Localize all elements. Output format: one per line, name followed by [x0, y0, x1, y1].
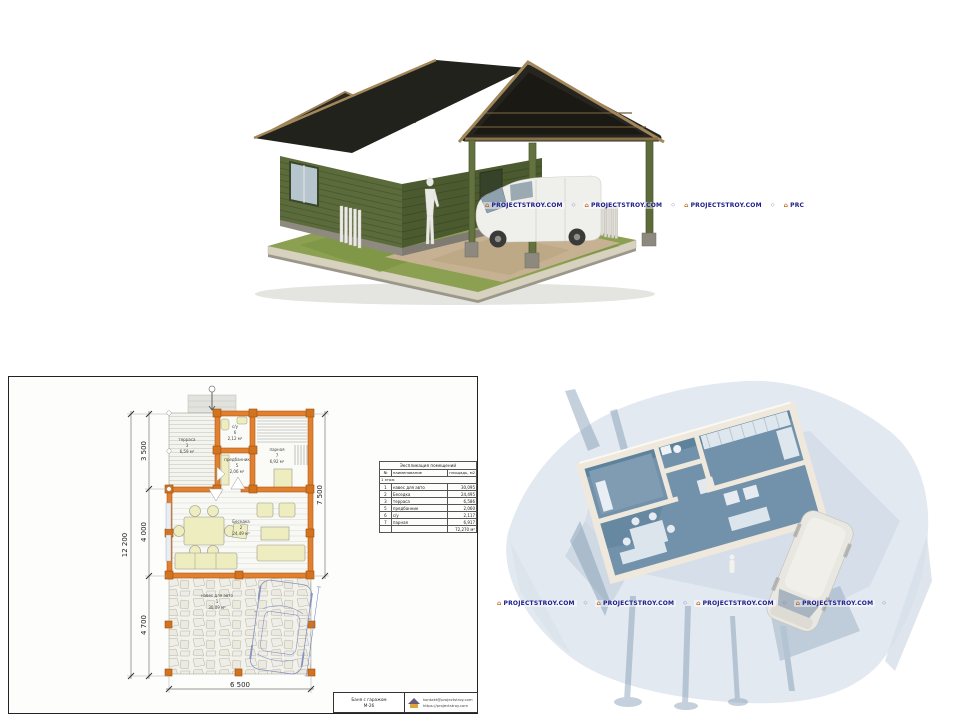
carport-paving — [169, 576, 311, 674]
row-num: 3 — [380, 498, 392, 505]
dim-segment-top: 3 500 — [140, 441, 148, 461]
project-presentation-page: { "watermarks": { "brand": "PROJECTSTROY… — [0, 0, 960, 722]
explication-table: Экспликация помещений № наименование пло… — [379, 461, 477, 533]
row-num: 2 — [380, 491, 392, 498]
window-symbol — [166, 503, 171, 529]
house-icon: ⌂ — [684, 203, 689, 209]
exterior-render-panel — [180, 10, 760, 310]
svg-text:30,09 м²: 30,09 м² — [208, 605, 226, 610]
col-header-num: № — [380, 470, 392, 477]
row-name: с/у — [391, 512, 447, 519]
company-logo-icon — [408, 698, 420, 708]
house-icon: ⌂ — [585, 203, 590, 209]
contact-website: https://projectstroy.com — [423, 703, 473, 708]
table-row: 6 с/у 2,117 — [380, 512, 477, 519]
row-num: 7 — [380, 519, 392, 526]
watermark-text: PROJECTSTROY.COM — [492, 202, 563, 209]
svg-text:1: 1 — [216, 599, 219, 604]
left-fence — [340, 206, 361, 248]
row-area: 2,060 — [448, 505, 477, 512]
svg-text:3: 3 — [186, 443, 189, 448]
porch-steps — [188, 386, 236, 413]
watermark: ⌂PROJECTSTROY.COM — [595, 600, 677, 607]
total-area: 72,270 м² — [448, 526, 477, 533]
dim-right-height: 7 500 — [316, 485, 324, 505]
table-row: 1 навес для авто 30,095 — [380, 484, 477, 491]
title-block-project: Баня с гаражом М-26 — [334, 693, 405, 712]
svg-text:предбанник: предбанник — [224, 457, 250, 462]
house-icon: ⌂ — [597, 601, 602, 607]
project-code: М-26 — [364, 703, 374, 708]
table-row: 2 Беседка 24,495 — [380, 491, 477, 498]
row-name: навес для авто — [391, 484, 447, 491]
watermark-text: PROJECTSTROY.COM — [802, 600, 873, 607]
svg-text:6,92 м²: 6,92 м² — [270, 459, 285, 464]
dim-segment-middle: 4 000 — [140, 522, 148, 542]
watermark-text: PROJECTSTROY.COM — [504, 600, 575, 607]
isometric-cutaway-render — [480, 371, 960, 711]
watermark-text: PRC — [790, 202, 804, 209]
watermark: ⌂PROJECTSTROY.COM — [794, 600, 876, 607]
diamond-separator-icon: ◇ — [671, 203, 675, 208]
isometric-cutaway-panel — [480, 371, 960, 711]
svg-text:с/у: с/у — [232, 424, 239, 429]
dim-overall-height: 12 200 — [121, 533, 129, 558]
table-total-row: 72,270 м² — [380, 526, 477, 533]
svg-text:24,49 м²: 24,49 м² — [232, 531, 250, 536]
exterior-render — [180, 10, 760, 310]
explication-title: Экспликация помещений — [380, 462, 477, 470]
watermark: ⌂PROJECTSTROY.COM — [583, 202, 665, 209]
diamond-separator-icon: ◇ — [882, 601, 886, 606]
watermark-text: PROJECTSTROY.COM — [591, 202, 662, 209]
svg-text:2: 2 — [240, 525, 243, 530]
watermark: ⌂PROJECTSTROY.COM — [495, 600, 577, 607]
watermark-text: PROJECTSTROY.COM — [703, 600, 774, 607]
svg-text:терраса: терраса — [179, 437, 197, 442]
floor-plan-drawing: 12 200 3 500 4 000 4 700 7 500 6 500 тер… — [9, 377, 477, 713]
row-num: 1 — [380, 484, 392, 491]
house-icon: ⌂ — [696, 601, 701, 607]
floor-plan-sheet: 12 200 3 500 4 000 4 700 7 500 6 500 тер… — [8, 376, 478, 714]
svg-text:2,12 м²: 2,12 м² — [228, 436, 243, 441]
house-icon: ⌂ — [485, 203, 490, 209]
window-symbol — [166, 535, 171, 561]
dim-bottom-width: 6 500 — [230, 681, 250, 689]
svg-text:5: 5 — [236, 463, 239, 468]
title-block-contacts: kontakt@projectstroy.com https://project… — [405, 693, 477, 712]
diamond-separator-icon: ◇ — [572, 203, 576, 208]
contact-email: kontakt@projectstroy.com — [423, 697, 473, 702]
diamond-separator-icon: ◇ — [683, 601, 687, 606]
watermark: ⌂PROJECTSTROY.COM — [682, 202, 764, 209]
row-name: Беседка — [391, 491, 447, 498]
floor-section-label: 1 этаж — [380, 477, 477, 484]
svg-text:7: 7 — [276, 453, 279, 458]
watermark-row-top: ⌂PROJECTSTROY.COM ◇ ⌂PROJECTSTROY.COM ◇ … — [483, 202, 806, 209]
row-area: 2,117 — [448, 512, 477, 519]
watermark: ⌂PROJECTSTROY.COM — [694, 600, 776, 607]
row-name: предбанник — [391, 505, 447, 512]
table-row: 3 терраса 6,586 — [380, 498, 477, 505]
col-header-name: наименование — [391, 470, 447, 477]
col-header-area: площадь, м2 — [448, 470, 477, 477]
row-num: 6 — [380, 512, 392, 519]
mannequin-figure — [730, 555, 735, 574]
table-row: 7 парная 6,917 — [380, 519, 477, 526]
row-area: 6,586 — [448, 498, 477, 505]
table-row: 5 предбанник 2,060 — [380, 505, 477, 512]
row-name: терраса — [391, 498, 447, 505]
project-name: Баня с гаражом — [351, 697, 386, 702]
svg-text:Беседка: Беседка — [232, 519, 250, 524]
row-num: 5 — [380, 505, 392, 512]
row-area: 30,095 — [448, 484, 477, 491]
diamond-separator-icon: ◇ — [584, 601, 588, 606]
svg-text:2,06 м²: 2,06 м² — [230, 469, 245, 474]
house-icon: ⌂ — [796, 601, 801, 607]
watermark-row-bottom: ⌂PROJECTSTROY.COM ◇ ⌂PROJECTSTROY.COM ◇ … — [495, 600, 886, 607]
watermark-text: PROJECTSTROY.COM — [691, 202, 762, 209]
title-block: Баня с гаражом М-26 kontakt@projectstroy… — [333, 692, 478, 713]
svg-text:6,59 м²: 6,59 м² — [180, 449, 195, 454]
house-icon: ⌂ — [497, 601, 502, 607]
diamond-separator-icon: ◇ — [783, 601, 787, 606]
row-area: 6,917 — [448, 519, 477, 526]
row-area: 24,495 — [448, 491, 477, 498]
watermark-text: PROJECTSTROY.COM — [603, 600, 674, 607]
diamond-separator-icon: ◇ — [771, 203, 775, 208]
svg-text:навес для авто: навес для авто — [201, 593, 233, 598]
watermark-clipped: ⌂PRC — [782, 202, 807, 209]
house-icon: ⌂ — [784, 203, 789, 209]
svg-text:парная: парная — [269, 447, 285, 452]
svg-text:6: 6 — [234, 430, 237, 435]
stove — [274, 469, 292, 489]
row-name: парная — [391, 519, 447, 526]
dim-segment-bottom: 4 700 — [140, 615, 148, 635]
watermark: ⌂PROJECTSTROY.COM — [483, 202, 565, 209]
